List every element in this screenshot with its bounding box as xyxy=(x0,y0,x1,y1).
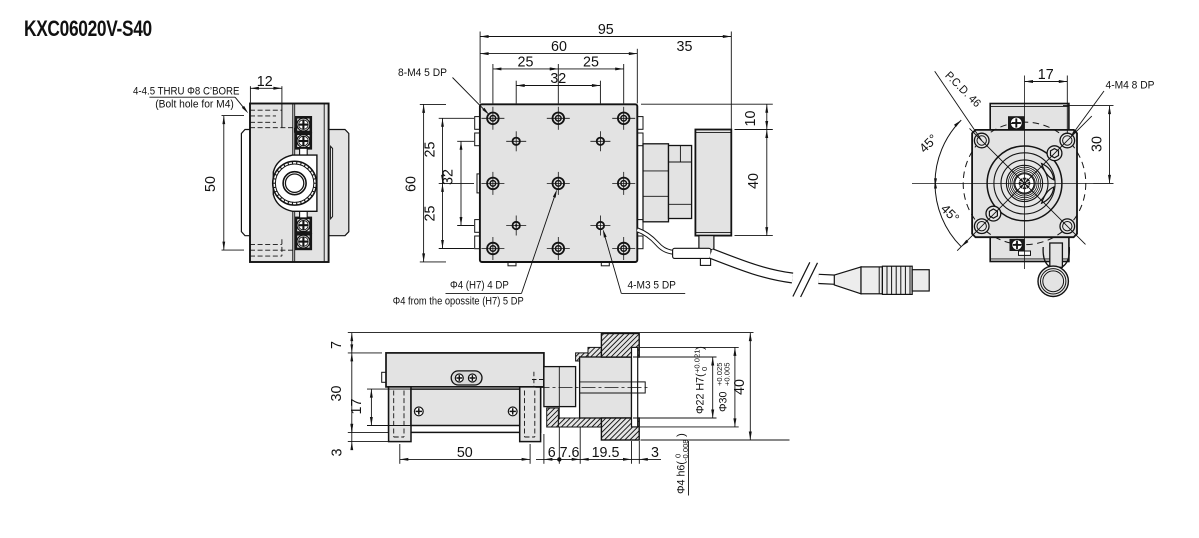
svg-text:12: 12 xyxy=(257,74,273,90)
svg-text:Φ22 H7(: Φ22 H7( xyxy=(694,373,706,414)
svg-text:(Bolt hole for M4): (Bolt hole for M4) xyxy=(155,98,234,111)
svg-text:60: 60 xyxy=(404,176,420,192)
svg-text:3: 3 xyxy=(651,445,659,461)
svg-text:32: 32 xyxy=(550,71,566,87)
svg-text:Φ4 (H7) 4 DP: Φ4 (H7) 4 DP xyxy=(450,279,509,292)
svg-text:40: 40 xyxy=(746,173,762,189)
svg-text:30: 30 xyxy=(329,386,345,402)
svg-text:60: 60 xyxy=(551,39,567,55)
svg-text:25: 25 xyxy=(422,206,438,222)
svg-text:17: 17 xyxy=(1038,67,1054,83)
svg-text:7.6: 7.6 xyxy=(560,445,580,461)
svg-text:4-M3 5 DP: 4-M3 5 DP xyxy=(628,279,676,292)
svg-text:50: 50 xyxy=(457,445,473,461)
svg-text:25: 25 xyxy=(583,55,599,71)
svg-text:30: 30 xyxy=(1089,136,1105,152)
svg-text:95: 95 xyxy=(598,22,614,38)
svg-text:32: 32 xyxy=(441,169,457,185)
svg-text:0: 0 xyxy=(700,367,709,371)
svg-text:35: 35 xyxy=(677,39,693,55)
svg-text:Φ4 h6(: Φ4 h6( xyxy=(675,461,687,494)
svg-text:8-M4 5 DP: 8-M4 5 DP xyxy=(398,67,447,80)
svg-text:+0.005: +0.005 xyxy=(723,363,732,386)
svg-text:25: 25 xyxy=(518,55,534,71)
svg-text:4-M4 8 DP: 4-M4 8 DP xyxy=(1106,79,1155,92)
svg-text:19.5: 19.5 xyxy=(592,445,620,461)
svg-text:4-4.5 THRU Φ8 C’BORE: 4-4.5 THRU Φ8 C’BORE xyxy=(133,85,239,98)
svg-text:17: 17 xyxy=(349,399,365,415)
svg-text:10: 10 xyxy=(743,111,759,127)
svg-text:KXC06020V-S40: KXC06020V-S40 xyxy=(24,17,152,42)
svg-text:50: 50 xyxy=(203,176,219,192)
svg-text:3: 3 xyxy=(330,448,346,456)
svg-text:6: 6 xyxy=(548,445,556,461)
svg-text:): ) xyxy=(676,433,688,437)
svg-text:7: 7 xyxy=(329,341,345,349)
svg-text:25: 25 xyxy=(422,142,438,158)
svg-text:40: 40 xyxy=(732,379,748,395)
svg-text:Φ30: Φ30 xyxy=(717,392,729,412)
svg-text:Φ4 from the opossite (H7) 5 DP: Φ4 from the opossite (H7) 5 DP xyxy=(393,296,524,308)
svg-text:-0.008: -0.008 xyxy=(681,439,690,461)
svg-text:): ) xyxy=(695,346,707,350)
